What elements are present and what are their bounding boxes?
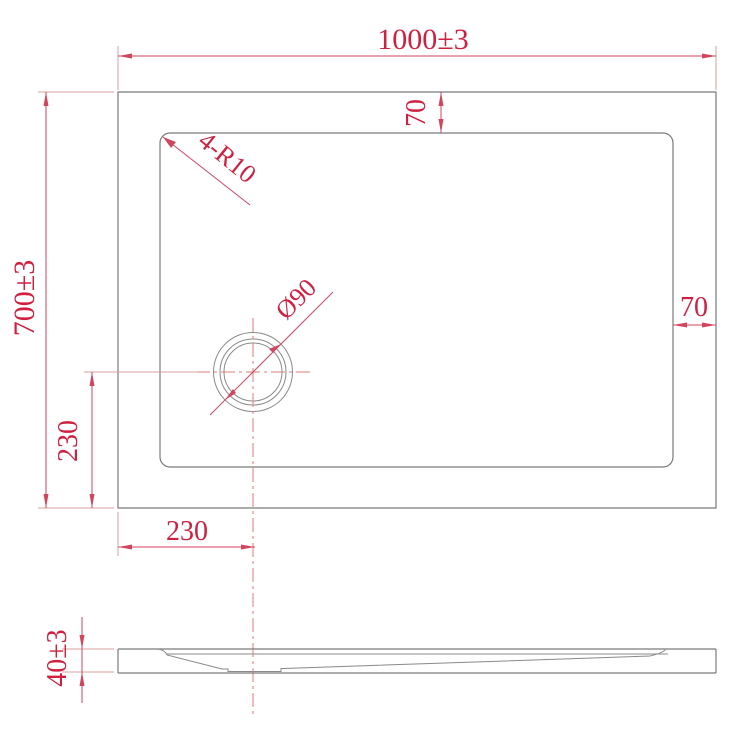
arrowhead — [80, 635, 85, 649]
dim-drain-offset-bottom-label: 230 — [53, 420, 84, 462]
arrowhead — [702, 323, 716, 328]
arrowhead — [673, 323, 687, 328]
side-right-slope — [284, 649, 666, 669]
dim-rim-right: 70 — [673, 292, 716, 328]
arrowhead — [44, 92, 49, 106]
dim-overall-width: 1000±3 — [118, 23, 716, 90]
arrowhead — [439, 92, 444, 106]
arrowhead — [44, 494, 49, 508]
dim-rim-top-label: 70 — [401, 99, 432, 127]
side-view — [118, 649, 716, 673]
dim-drain-offset-bottom: 230 — [53, 372, 198, 508]
corner-radius-label: 4-R10 — [193, 126, 262, 189]
dim-rim-right-label: 70 — [680, 292, 708, 323]
side-left-slope — [158, 649, 222, 669]
arrowhead — [80, 672, 85, 686]
dim-thickness: 40±3 — [42, 617, 114, 703]
leader-corner-radius: 4-R10 — [163, 126, 262, 205]
dim-overall-width-label: 1000±3 — [377, 23, 468, 56]
arrowhead — [90, 372, 95, 386]
arrowhead — [163, 137, 176, 148]
arrowhead — [90, 494, 95, 508]
drain-diameter-label: Ø90 — [270, 273, 322, 325]
dim-drain-offset-left-label: 230 — [166, 516, 208, 547]
plan-view — [118, 92, 716, 714]
arrowhead — [118, 545, 132, 550]
dim-rim-top: 70 — [401, 92, 444, 133]
technical-drawing-page: 1000±3 700±3 70 70 230 230 — [0, 0, 750, 750]
arrowhead — [118, 54, 132, 59]
arrowhead — [439, 119, 444, 133]
dim-overall-height-label: 700±3 — [8, 260, 41, 336]
arrowhead — [702, 54, 716, 59]
dim-thickness-label: 40±3 — [42, 629, 73, 686]
technical-drawing-canvas: 1000±3 700±3 70 70 230 230 — [0, 0, 750, 750]
dim-drain-offset-left: 230 — [118, 512, 255, 556]
